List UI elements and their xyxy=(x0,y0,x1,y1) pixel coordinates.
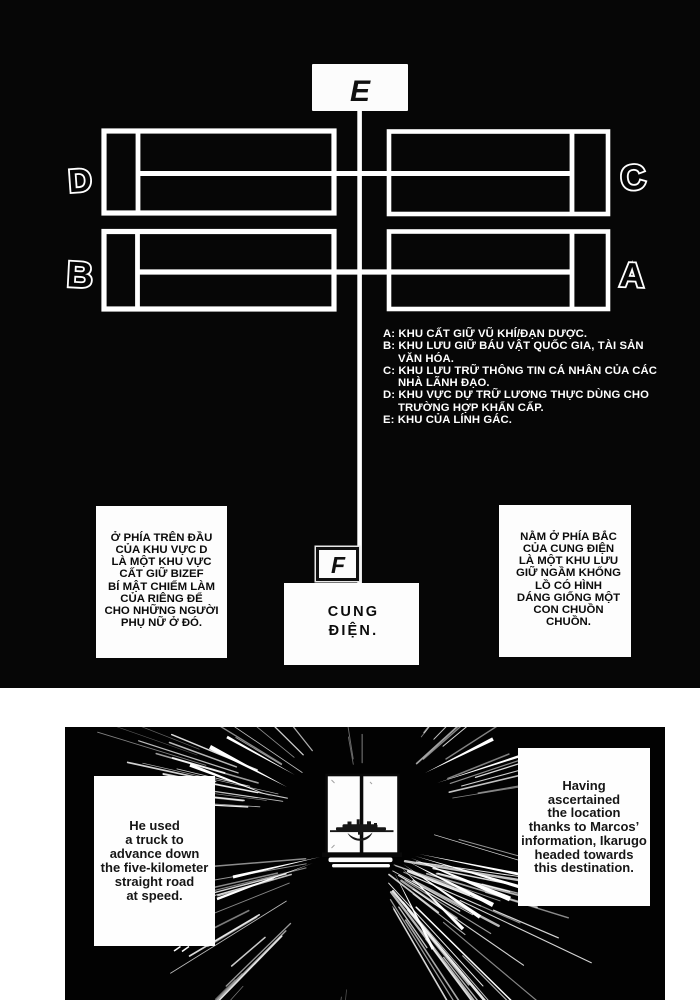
svg-text:D: D xyxy=(67,162,93,200)
svg-text:E: E xyxy=(350,75,371,108)
svg-text:A: A xyxy=(619,256,645,295)
svg-text:B: B xyxy=(66,253,94,295)
svg-text:F: F xyxy=(331,552,346,578)
svg-text:C: C xyxy=(619,157,648,198)
